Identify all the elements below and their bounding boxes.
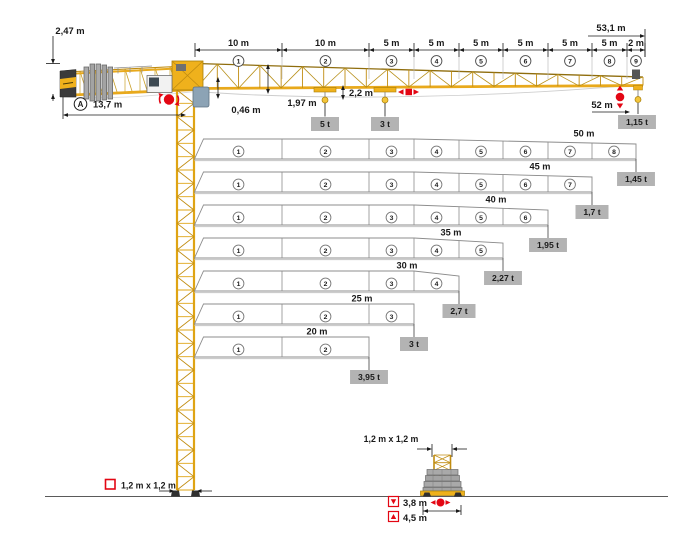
row-section-number: 2 — [324, 347, 328, 354]
jib-diagonal — [345, 68, 366, 87]
max-hook-radius-label: 52 m — [591, 99, 612, 110]
tower-brace — [177, 157, 194, 170]
dim-arrowhead — [216, 94, 220, 99]
counter-jib-bottom-chord — [61, 90, 196, 96]
tower-brace — [177, 277, 194, 290]
dim-arrowhead — [409, 48, 414, 52]
jib-bottom-chord — [196, 86, 643, 89]
jib-diagonal — [409, 71, 430, 88]
base-ballast-stack — [423, 470, 462, 492]
hook-block — [635, 97, 641, 103]
row-section-number: 1 — [237, 347, 241, 354]
section-number: 9 — [634, 59, 638, 66]
config-length-label: 45 m — [530, 162, 551, 172]
tower-brace — [177, 450, 194, 463]
jib-diagonal — [324, 68, 345, 88]
row-section-number: 7 — [568, 182, 572, 189]
row-section-number: 4 — [435, 248, 439, 255]
dim-arrowhead — [277, 48, 282, 52]
jib-diagonal — [494, 73, 515, 86]
row-section-number: 2 — [324, 314, 328, 321]
tower-brace — [177, 143, 194, 156]
dim-arrowhead — [282, 48, 287, 52]
config-length-label: 20 m — [307, 327, 328, 337]
jib-configurations: 1234567850 m1,45 t123456745 m1,7 t123456… — [195, 129, 655, 385]
tip-load-value: 1,95 t — [537, 240, 559, 250]
dim-arrowhead — [503, 48, 508, 52]
tip-capacity-value: 1,15 t — [626, 117, 648, 127]
trolley-travel-icon — [398, 89, 419, 96]
generated-annotations: 10 m110 m25 m35 m45 m55 m65 m75 m82 m912… — [46, 22, 656, 523]
mast-section-label: 1,2 m x 1,2 m — [121, 481, 176, 491]
tower-brace — [177, 197, 194, 210]
tower-brace — [177, 397, 194, 410]
section-length-label: 5 m — [562, 38, 578, 48]
trolley-5t — [314, 88, 336, 104]
jib-tip-hook — [634, 86, 643, 103]
hoisting-icon — [616, 86, 625, 109]
trolley-drop-height-label: 2,2 m — [349, 87, 373, 98]
dim-arrowhead — [498, 48, 503, 52]
section-number: 6 — [524, 59, 528, 66]
dim-arrowhead — [266, 64, 270, 69]
row-section-number: 2 — [324, 215, 328, 222]
dim-arrowhead — [364, 48, 369, 52]
jib-diagonal — [260, 65, 281, 88]
mast-section-icon — [106, 480, 116, 490]
crane-base — [421, 455, 465, 497]
section-number: 1 — [237, 59, 241, 66]
tower-brace — [177, 170, 194, 183]
dim-arrowhead — [587, 48, 592, 52]
section-length-label: 5 m — [602, 38, 618, 48]
row-section-number: 5 — [479, 149, 483, 156]
tower-brace — [177, 117, 194, 130]
dim-arrowhead — [459, 48, 464, 52]
dim-arrowhead — [369, 48, 374, 52]
tip-load-value: 3 t — [409, 339, 419, 349]
dim-arrowhead — [414, 48, 419, 52]
row-outline — [195, 205, 549, 225]
base-outer-width-label: 4,5 m — [403, 512, 427, 523]
section-number: 3 — [390, 59, 394, 66]
row-section-number: 4 — [435, 281, 439, 288]
tower-brace — [177, 250, 194, 263]
hook-block — [322, 97, 328, 103]
tower-brace — [177, 343, 194, 356]
jib-root-height-label: 1,97 m — [287, 97, 316, 108]
tower-brace — [177, 437, 194, 450]
tower-brace — [177, 303, 194, 316]
counter-jib-diagonal — [140, 68, 148, 92]
jib-diagonal — [366, 69, 387, 87]
dim-arrowhead — [622, 48, 627, 52]
tower-lattice — [177, 90, 194, 490]
hook-block — [382, 97, 388, 103]
jib-diagonal — [281, 67, 302, 88]
dim-arrowhead — [640, 48, 645, 52]
trolley1-capacity-value: 5 t — [320, 119, 330, 129]
base-inner-width-label: 3,8 m — [403, 497, 427, 508]
row-section-number: 3 — [390, 281, 394, 288]
config-length-label: 40 m — [486, 195, 507, 205]
tower-brace — [177, 210, 194, 223]
jib-diagonal — [302, 67, 323, 88]
section-length-label: 5 m — [384, 38, 400, 48]
jib-diagonal — [217, 64, 238, 88]
tower-brace — [177, 130, 194, 143]
config-length-label: 35 m — [441, 228, 462, 238]
trolley2-capacity-value: 3 t — [380, 119, 390, 129]
dim-arrowhead — [341, 95, 345, 100]
row-section-number: 8 — [612, 149, 616, 156]
section-number: 8 — [608, 59, 612, 66]
tower-brace — [177, 330, 194, 343]
row-section-number: 2 — [324, 149, 328, 156]
jib-diagonal — [558, 74, 579, 86]
dimension-up-icon — [389, 512, 399, 522]
jib-foot-offset-label: 0,46 m — [231, 104, 260, 115]
counter-jib-radius-label: 13,7 m — [93, 99, 122, 110]
row-section-number: 2 — [324, 281, 328, 288]
tip-load-value: 3,95 t — [358, 372, 380, 382]
jib-diagonal — [451, 72, 472, 87]
tower-brace — [177, 357, 194, 370]
dim-arrowhead — [63, 113, 68, 117]
section-number: 5 — [479, 59, 483, 66]
tip-load-value: 1,45 t — [625, 174, 647, 184]
config-row: 1220 m3,95 t — [195, 327, 388, 385]
dim-arrowhead — [627, 48, 632, 52]
dim-arrowhead — [625, 110, 630, 114]
tower-brace — [177, 370, 194, 383]
section-number: 7 — [568, 59, 572, 66]
row-outline — [195, 304, 415, 324]
tower-brace — [177, 423, 194, 436]
section-length-label: 5 m — [518, 38, 534, 48]
section-length-label: 5 m — [429, 38, 445, 48]
jib-diagonal — [579, 76, 600, 86]
tower-brace — [177, 223, 194, 236]
diagram-canvas: 10 m110 m25 m35 m45 m55 m65 m75 m82 m912… — [0, 0, 700, 550]
row-section-number: 3 — [390, 182, 394, 189]
dim-arrowhead — [452, 447, 457, 451]
row-section-number: 6 — [524, 182, 528, 189]
row-section-number: 7 — [568, 149, 572, 156]
travel-icon — [431, 499, 451, 507]
config-length-label: 50 m — [574, 129, 595, 139]
tower-brace — [177, 237, 194, 250]
row-section-number: 6 — [524, 149, 528, 156]
config-length-label: 25 m — [352, 294, 373, 304]
section-number: 2 — [324, 59, 328, 66]
dim-arrowhead — [427, 447, 432, 451]
tip-load-value: 2,27 t — [492, 273, 514, 283]
dim-arrowhead — [266, 89, 270, 94]
tower-brace — [177, 183, 194, 196]
row-section-number: 5 — [479, 248, 483, 255]
ref-a-letter: A — [78, 100, 84, 109]
dim-arrowhead — [543, 48, 548, 52]
jib-diagonal — [537, 74, 558, 86]
jib-diagonal — [239, 65, 260, 88]
row-section-number: 4 — [435, 215, 439, 222]
row-section-number: 1 — [237, 248, 241, 255]
dim-arrowhead — [216, 77, 220, 82]
tower-brace — [177, 383, 194, 396]
jib-lattice — [196, 64, 643, 89]
row-section-number: 3 — [390, 314, 394, 321]
tower-brace — [177, 463, 194, 476]
jib — [196, 64, 643, 89]
row-section-number: 2 — [324, 182, 328, 189]
dim-arrowhead — [456, 509, 461, 513]
tower-brace — [177, 263, 194, 276]
crane-datasheet-diagram: 10 m110 m25 m35 m45 m55 m65 m75 m82 m912… — [0, 0, 700, 550]
row-section-number: 6 — [524, 215, 528, 222]
tower-brace — [177, 410, 194, 423]
tip-load-value: 2,7 t — [450, 306, 467, 316]
jib-diagonal — [388, 69, 409, 87]
tower-mast — [171, 90, 200, 497]
jib-diagonal — [515, 73, 536, 86]
jib-diagonal — [600, 76, 621, 86]
cab-window — [149, 78, 159, 87]
jib-diagonal — [430, 71, 451, 87]
section-number: 4 — [435, 59, 439, 66]
tower-brace — [177, 317, 194, 330]
counter-jib-height-label: 2,47 m — [55, 25, 84, 36]
dim-arrowhead — [195, 48, 200, 52]
jib-section-strip: 10 m110 m25 m35 m45 m55 m65 m75 m82 m9 — [195, 38, 645, 79]
row-section-number: 3 — [390, 215, 394, 222]
tip-load-value: 1,7 t — [583, 207, 600, 217]
section-length-label: 2 m — [628, 38, 644, 48]
total-length-label: 53,1 m — [596, 22, 625, 33]
row-section-number: 4 — [435, 182, 439, 189]
row-section-number: 1 — [237, 149, 241, 156]
trolley-3t — [374, 88, 396, 104]
dim-arrowhead — [592, 48, 597, 52]
row-section-number: 4 — [435, 149, 439, 156]
row-section-number: 1 — [237, 182, 241, 189]
jib-top-chord — [196, 64, 643, 78]
section-length-label: 5 m — [473, 38, 489, 48]
dim-arrowhead — [548, 48, 553, 52]
dim-arrowhead — [51, 94, 55, 99]
dim-arrowhead — [454, 48, 459, 52]
config-length-label: 30 m — [397, 261, 418, 271]
row-section-number: 3 — [390, 149, 394, 156]
row-section-number: 2 — [324, 248, 328, 255]
tower-brace — [177, 477, 194, 490]
counterweight-slabs — [84, 64, 113, 101]
row-section-number: 1 — [237, 314, 241, 321]
section-length-label: 10 m — [228, 38, 249, 48]
base-mast-section-label: 1,2 m x 1,2 m — [364, 434, 419, 444]
jib-diagonal — [473, 72, 494, 87]
jib-tip-head — [632, 70, 640, 80]
row-section-number: 3 — [390, 248, 394, 255]
dimension-down-icon — [389, 497, 399, 507]
counter-jib-diagonal — [125, 69, 133, 93]
slewing-mechanism — [193, 87, 209, 107]
row-section-number: 5 — [479, 182, 483, 189]
row-section-number: 5 — [479, 215, 483, 222]
section-length-label: 10 m — [315, 38, 336, 48]
hoist-winch — [176, 64, 186, 71]
row-section-number: 1 — [237, 215, 241, 222]
row-section-number: 1 — [237, 281, 241, 288]
tower-brace — [177, 290, 194, 303]
